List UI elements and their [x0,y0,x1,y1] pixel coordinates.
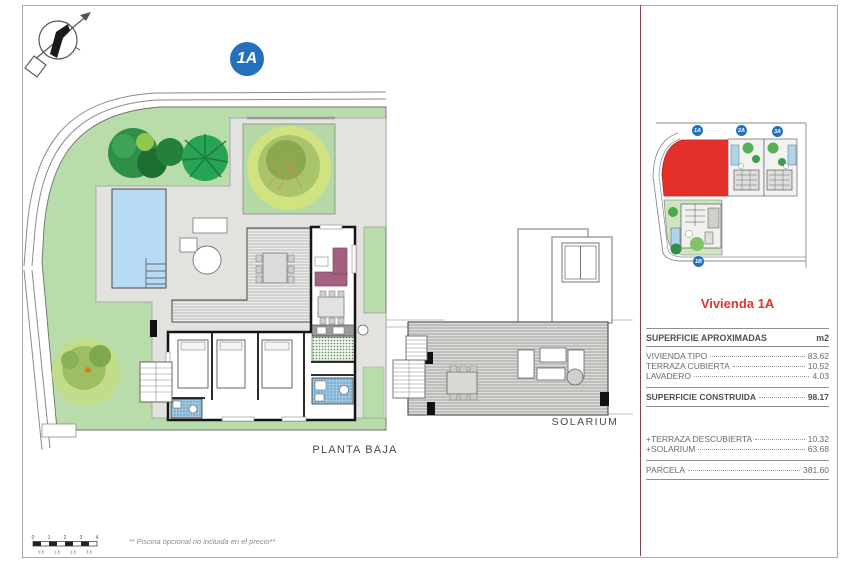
table-row-parcel: PARCELA 381.60 [646,461,829,479]
row-label: PARCELA [646,465,685,475]
site-badge-3a: 3A [772,126,783,137]
unit-badge-1a: 1A [230,42,264,76]
table-header-unit: m2 [816,333,829,343]
wall-pier [150,320,157,337]
scale-tick-label: 3.5 [86,550,93,555]
row-label: TERRAZA CUBIERTA [646,361,730,371]
terrace-table [256,253,294,283]
bathroom-left [171,399,202,418]
pool [112,189,166,288]
table-header: SUPERFICIE APROXIMADAS m2 [646,329,829,346]
dotted-leader [733,366,805,367]
row-label: LAVADERO [646,371,691,381]
garden-strip [363,367,384,418]
pool-disclaimer-note: ** Piscina opcional no incluida en el pr… [118,537,286,546]
solarium-stairs [393,336,427,398]
rule [646,479,829,480]
row-value: 4.03 [812,371,829,381]
olive-tree [247,126,331,210]
table-row: LAVADERO 4.03 [646,371,829,381]
row-value: 10.32 [808,434,829,444]
plan-drawing: 0 1 2 3 4 0.5 1.5 2.5 3.5 [0,0,850,566]
entry-pad [42,424,76,437]
dotted-leader [755,439,805,440]
table-header-label: SUPERFICIE APROXIMADAS [646,333,767,343]
row-value: 98.17 [808,392,829,402]
scale-tick-label: 0 [32,535,35,541]
site-unit-3a [764,139,797,196]
dotted-leader [694,376,809,377]
kitchen [312,325,354,361]
row-label: +TERRAZA DESCUBIERTA [646,434,752,444]
table-row: +SOLARIUM 63.68 [646,444,829,454]
panel-title: Vivienda 1A [646,296,829,311]
scale-tick-label: 4 [96,535,99,541]
solarium-plan [393,229,612,415]
scale-tick-label: 1.5 [54,550,61,555]
dotted-leader [710,356,804,357]
row-label: SUPERFICIE CONSTRUIDA [646,392,756,402]
north-arrow-icon [25,12,91,77]
scale-tick-label: 3 [80,535,83,541]
solarium-label: SOLARIUM [535,416,635,428]
site-unit-2a [728,139,764,196]
row-value: 10.52 [808,361,829,371]
surface-panel: Vivienda 1A SUPERFICIE APROXIMADAS m2 VI… [646,296,829,480]
table-row: TERRAZA CUBIERTA 10.52 [646,361,829,371]
site-badge-2a: 2A [736,125,747,136]
site-plan [653,123,806,268]
planta-baja-label: PLANTA BAJA [290,444,420,456]
plot-1a-highlight [662,140,728,196]
roof-window [562,243,599,282]
beds [178,340,292,388]
dotted-leader [759,397,805,398]
row-value: 83.62 [808,351,829,361]
site-badge-1a: 1A [692,125,703,136]
table-row: VIVIENDA TIPO 83.62 [646,351,829,361]
entry-stairs [140,362,172,402]
main-floor-plan [24,92,386,450]
scale-tick-label: 0.5 [38,550,45,555]
row-value: 381.60 [803,465,829,475]
dotted-leader [688,470,800,471]
dining-table [318,291,344,324]
site-badge-1b: 1B [693,256,704,267]
row-value: 63.68 [808,444,829,454]
row-label: +SOLARIUM [646,444,695,454]
table-row-total: SUPERFICIE CONSTRUIDA 98.17 [646,388,829,406]
table-row: +TERRAZA DESCUBIERTA 10.32 [646,434,829,444]
spacer [646,407,829,434]
light-tree [52,338,120,406]
site-unit-1b [664,200,722,255]
dotted-leader [698,449,804,450]
scale-bar: 0 1 2 3 4 0.5 1.5 2.5 3.5 [32,535,99,555]
row-label: VIVIENDA TIPO [646,351,707,361]
bathroom-right [312,378,353,404]
scale-tick-label: 2.5 [70,550,77,555]
scale-tick-label: 2 [64,535,67,541]
scale-tick-label: 1 [48,535,51,541]
